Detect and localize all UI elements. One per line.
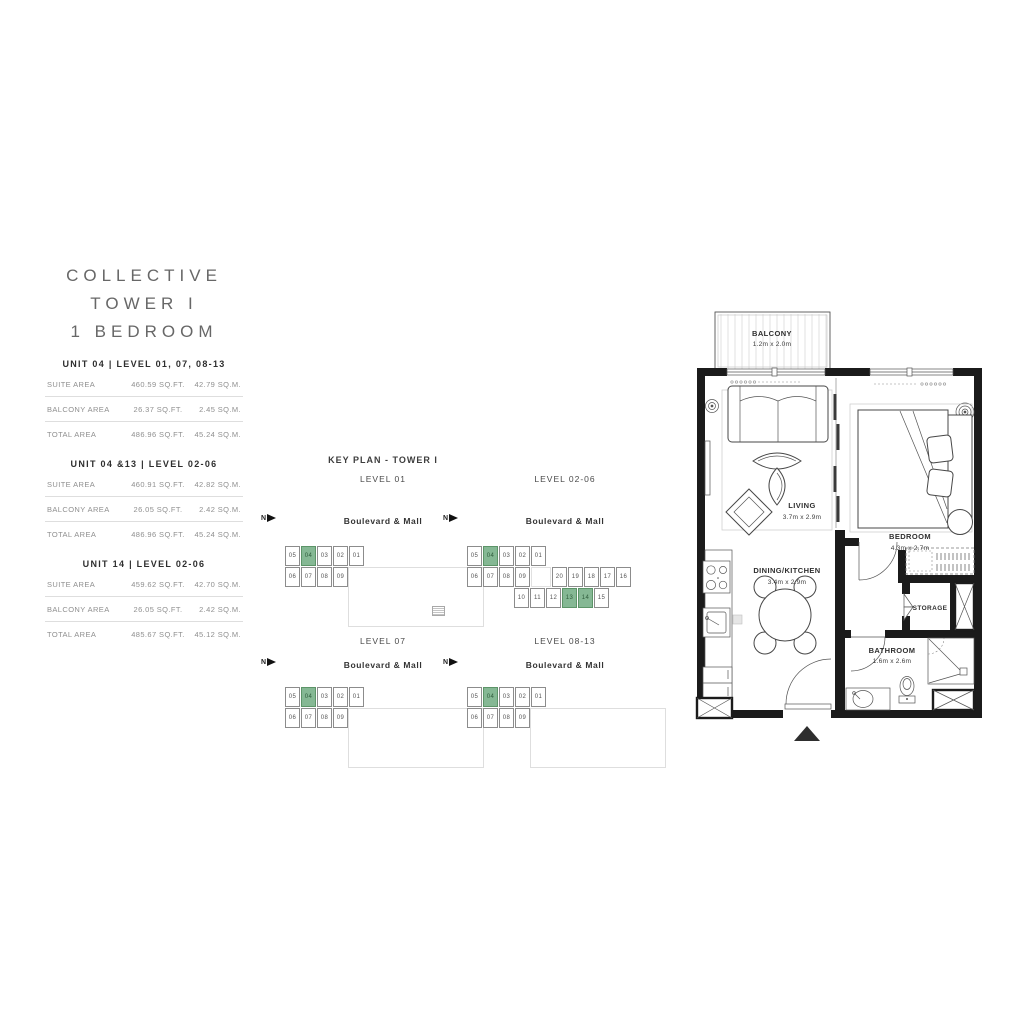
keyplan-unit-19: 19 [568, 567, 583, 587]
row-label: SUITE AREA [47, 380, 125, 389]
keyplan-unit-01: 01 [349, 687, 364, 707]
curtain-symbols [731, 381, 946, 385]
balcony-label: BALCONY [752, 329, 792, 338]
bedroom-label: BEDROOM [889, 532, 931, 541]
keyplan-map: 050403020106070809 [285, 687, 483, 773]
table-row: SUITE AREA 460.59 SQ.FT. 42.79 SQ.M. [45, 372, 243, 396]
keyplan-unit-02: 02 [515, 687, 530, 707]
row-sqm: 2.45 SQ.M. [191, 405, 241, 414]
keyplan-unit-03: 03 [499, 546, 514, 566]
north-label: N [261, 659, 266, 666]
table-header: UNIT 04 &13 | LEVEL 02-06 [45, 459, 243, 469]
keyplan-unit-08: 08 [499, 567, 514, 587]
keyplan-unit-11: 11 [530, 588, 545, 608]
floor-plan-drawing: BALCONY 1.2m x 2.0m [688, 298, 1000, 750]
table-row: TOTAL AREA 485.67 SQ.FT. 45.12 SQ.M. [45, 621, 243, 646]
north-label: N [443, 659, 448, 666]
row-label: TOTAL AREA [47, 630, 125, 639]
keyplan-unit-01: 01 [531, 546, 546, 566]
keyplan-row: 0504030201 [467, 687, 665, 707]
keyplan-unit-09: 09 [333, 567, 348, 587]
accent-chair [726, 489, 772, 535]
area-table-unit04-13: UNIT 04 &13 | LEVEL 02-06 SUITE AREA 460… [45, 459, 243, 546]
stove-icon [703, 561, 730, 593]
row-sqm: 42.70 SQ.M. [191, 580, 241, 589]
north-triangle-icon [267, 514, 276, 522]
table-header: UNIT 14 | LEVEL 02-06 [45, 559, 243, 569]
row-sqft: 26.37 SQ.FT. [125, 405, 191, 414]
row-sqft: 459.62 SQ.FT. [125, 580, 191, 589]
keyplan-map: 0504030201060708092019181716101112131415 [467, 546, 665, 632]
row-label: BALCONY AREA [47, 605, 125, 614]
keyplan-unit-05: 05 [285, 546, 300, 566]
keyplan-unit-18: 18 [584, 567, 599, 587]
keyplan-unit-07: 07 [301, 708, 316, 728]
entry-marker-icon [794, 726, 820, 741]
street-label: Boulevard & Mall [465, 660, 665, 670]
window-bedroom [870, 368, 953, 376]
area-table-unit14: UNIT 14 | LEVEL 02-06 SUITE AREA 459.62 … [45, 559, 243, 646]
core-outline [531, 567, 551, 587]
keyplan-unit-03: 03 [499, 687, 514, 707]
street-label: Boulevard & Mall [465, 516, 665, 526]
north-arrow-icon: N [443, 658, 458, 666]
keyplan-unit-06: 06 [467, 708, 482, 728]
keyplan-level-01: LEVEL 01 Boulevard & Mall N 050403020106… [283, 474, 483, 632]
keyplan-unit-05: 05 [285, 687, 300, 707]
podium-outline [530, 708, 666, 768]
table-row: TOTAL AREA 486.96 SQ.FT. 45.24 SQ.M. [45, 521, 243, 546]
keyplan-level-02-06: LEVEL 02-06 Boulevard & Mall N 050403020… [465, 474, 665, 632]
keyplan-unit-02: 02 [333, 687, 348, 707]
shaft-right [955, 583, 974, 630]
row-sqft: 26.05 SQ.FT. [125, 505, 191, 514]
north-arrow-icon: N [443, 514, 458, 522]
keyplan-unit-08: 08 [317, 708, 332, 728]
row-label: BALCONY AREA [47, 405, 125, 414]
balcony-dims: 1.2m x 2.0m [753, 341, 792, 348]
title-line-2: TOWER I [45, 290, 243, 318]
keyplan-unit-04: 04 [483, 687, 498, 707]
row-label: SUITE AREA [47, 480, 125, 489]
lounge-chair [753, 453, 801, 505]
keyplan-unit-09: 09 [333, 708, 348, 728]
keyplan-unit-02: 02 [333, 546, 348, 566]
north-label: N [443, 515, 448, 522]
keyplan-unit-02: 02 [515, 546, 530, 566]
row-label: SUITE AREA [47, 580, 125, 589]
keyplan-map: 050403020106070809 [467, 687, 665, 773]
row-sqft: 486.96 SQ.FT. [125, 530, 191, 539]
table-row: SUITE AREA 460.91 SQ.FT. 42.82 SQ.M. [45, 472, 243, 496]
keyplan-level-08-13: LEVEL 08-13 Boulevard & Mall N 050403020… [465, 636, 665, 773]
stairs-icon [432, 606, 445, 616]
sliding-partition [834, 378, 840, 528]
keyplan-unit-10: 10 [514, 588, 529, 608]
dining-kitchen-dims: 3.4m x 2.9m [768, 579, 807, 586]
keyplan-unit-15: 15 [594, 588, 609, 608]
keyplan-unit-07: 07 [483, 567, 498, 587]
keyplan-level-label: LEVEL 02-06 [465, 474, 665, 484]
keyplan-unit-01: 01 [531, 687, 546, 707]
floor-plan: BALCONY 1.2m x 2.0m [688, 298, 1000, 755]
bathroom-sink-icon [846, 688, 890, 710]
shaft-bathroom [933, 690, 974, 710]
keyplan-unit-13: 13 [562, 588, 577, 608]
bathroom-label: BATHROOM [869, 646, 916, 655]
dining-table [759, 589, 811, 641]
row-sqm: 2.42 SQ.M. [191, 605, 241, 614]
keyplan-level-label: LEVEL 01 [283, 474, 483, 484]
north-triangle-icon [267, 658, 276, 666]
keyplan-unit-06: 06 [467, 567, 482, 587]
north-triangle-icon [449, 514, 458, 522]
unit-info-panel: COLLECTIVE TOWER I 1 BEDROOM UNIT 04 | L… [45, 262, 243, 646]
ceiling-fixture-living-icon [706, 400, 719, 413]
entry [785, 659, 831, 741]
outlet-box [733, 615, 742, 624]
table-row: BALCONY AREA 26.05 SQ.FT. 2.42 SQ.M. [45, 496, 243, 521]
keyplan-unit-07: 07 [301, 567, 316, 587]
kitchen-sink-icon [703, 608, 730, 637]
keyplan-level-label: LEVEL 08-13 [465, 636, 665, 646]
row-label: TOTAL AREA [47, 530, 125, 539]
keyplan-level-label: LEVEL 07 [283, 636, 483, 646]
keyplan-row: 101112131415 [467, 588, 665, 608]
keyplan-row: 0504030201 [285, 546, 483, 566]
bathroom-dims: 1.6m x 2.6m [873, 658, 912, 665]
keyplan-title: KEY PLAN - TOWER I [303, 455, 463, 465]
dining-kitchen-label: DINING/KITCHEN [753, 566, 820, 575]
row-sqft: 460.59 SQ.FT. [125, 380, 191, 389]
keyplan-row: 0504030201 [467, 546, 665, 566]
row-sqm: 42.82 SQ.M. [191, 480, 241, 489]
keyplan-unit-17: 17 [600, 567, 615, 587]
row-sqft: 26.05 SQ.FT. [125, 605, 191, 614]
north-triangle-icon [449, 658, 458, 666]
brochure-page: COLLECTIVE TOWER I 1 BEDROOM UNIT 04 | L… [0, 0, 1024, 1024]
keyplan-unit-04: 04 [301, 546, 316, 566]
row-sqm: 45.24 SQ.M. [191, 530, 241, 539]
table-row: BALCONY AREA 26.37 SQ.FT. 2.45 SQ.M. [45, 396, 243, 421]
keyplan-unit-16: 16 [616, 567, 631, 587]
keyplan-unit-04: 04 [301, 687, 316, 707]
keyplan-unit-08: 08 [317, 567, 332, 587]
table-row: SUITE AREA 459.62 SQ.FT. 42.70 SQ.M. [45, 572, 243, 596]
keyplan-row: 0504030201 [285, 687, 483, 707]
shaft-bottom-left [697, 698, 732, 718]
keyplan-unit-09: 09 [515, 708, 530, 728]
keyplan-unit-08: 08 [499, 708, 514, 728]
keyplan-unit-03: 03 [317, 546, 332, 566]
bedroom [850, 404, 974, 580]
keyplan-unit-05: 05 [467, 687, 482, 707]
north-label: N [261, 515, 266, 522]
keyplan-unit-20: 20 [552, 567, 567, 587]
row-label: BALCONY AREA [47, 505, 125, 514]
fridge-icon [703, 667, 732, 700]
row-sqm: 45.24 SQ.M. [191, 430, 241, 439]
table-row: BALCONY AREA 26.05 SQ.FT. 2.42 SQ.M. [45, 596, 243, 621]
table-row: TOTAL AREA 486.96 SQ.FT. 45.24 SQ.M. [45, 421, 243, 446]
area-table-unit04: UNIT 04 | LEVEL 01, 07, 08-13 SUITE AREA… [45, 359, 243, 446]
sofa [728, 386, 828, 442]
row-spacer [467, 588, 513, 606]
keyplan-unit-07: 07 [483, 708, 498, 728]
wall-cabinet [705, 441, 710, 495]
row-label: TOTAL AREA [47, 430, 125, 439]
living-room [722, 386, 832, 535]
dining-area [754, 576, 816, 654]
north-arrow-icon: N [261, 658, 276, 666]
keyplan-unit-12: 12 [546, 588, 561, 608]
keyplan-unit-14: 14 [578, 588, 593, 608]
keyplan-row: 060708092019181716 [467, 567, 665, 587]
row-sqft: 460.91 SQ.FT. [125, 480, 191, 489]
row-sqft: 486.96 SQ.FT. [125, 430, 191, 439]
bed [858, 410, 973, 535]
keyplan-unit-03: 03 [317, 687, 332, 707]
keyplan-unit-06: 06 [285, 567, 300, 587]
row-sqm: 45.12 SQ.M. [191, 630, 241, 639]
window-living [727, 368, 825, 376]
keyplan-unit-05: 05 [467, 546, 482, 566]
keyplan-unit-01: 01 [349, 546, 364, 566]
keyplan-unit-04: 04 [483, 546, 498, 566]
toilet-icon [899, 677, 915, 704]
storage-label: STORAGE [913, 605, 948, 612]
podium-outline [348, 567, 484, 627]
title-line-3: 1 BEDROOM [45, 318, 243, 346]
keyplan-unit-06: 06 [285, 708, 300, 728]
keyplan-level-07: LEVEL 07 Boulevard & Mall N 050403020106… [283, 636, 483, 773]
row-sqft: 485.67 SQ.FT. [125, 630, 191, 639]
keyplan-map: 050403020106070809 [285, 546, 483, 632]
living-label: LIVING [788, 501, 815, 510]
table-header: UNIT 04 | LEVEL 01, 07, 08-13 [45, 359, 243, 369]
row-sqm: 42.79 SQ.M. [191, 380, 241, 389]
title-line-1: COLLECTIVE [45, 262, 243, 290]
bedroom-dims: 4.3m x 2.7m [891, 545, 930, 552]
north-arrow-icon: N [261, 514, 276, 522]
living-dims: 3.7m x 2.9m [783, 514, 822, 521]
podium-outline [348, 708, 484, 768]
row-sqm: 2.42 SQ.M. [191, 505, 241, 514]
shower [928, 638, 974, 684]
project-title: COLLECTIVE TOWER I 1 BEDROOM [45, 262, 243, 346]
keyplan-unit-09: 09 [515, 567, 530, 587]
